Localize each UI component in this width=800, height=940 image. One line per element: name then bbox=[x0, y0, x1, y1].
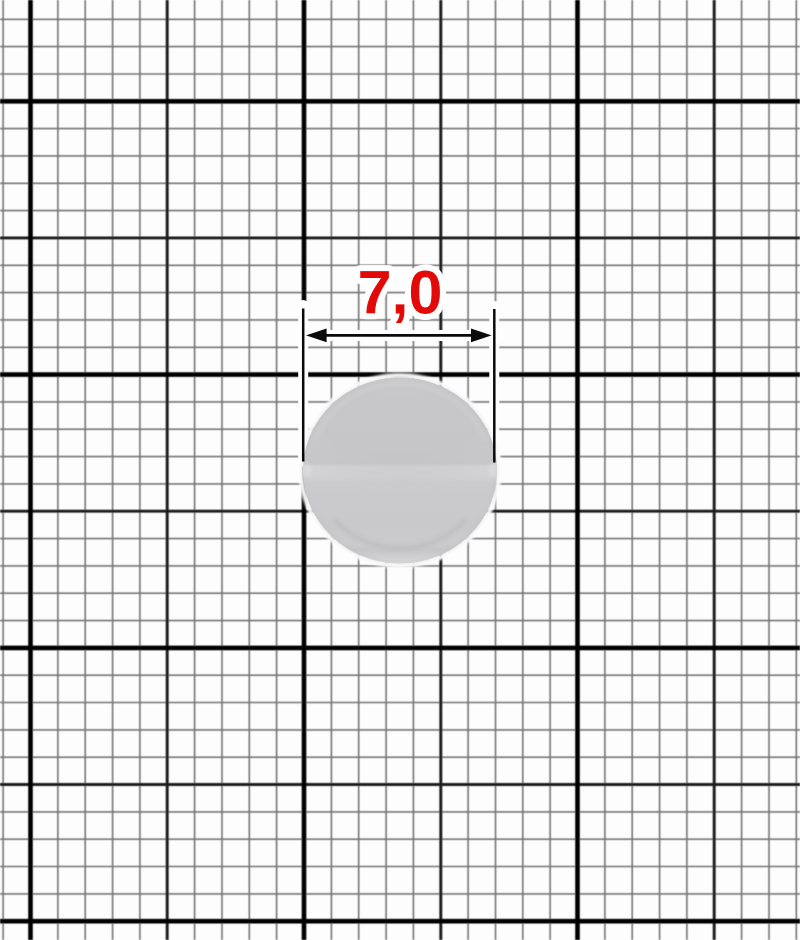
svg-text:7,0: 7,0 bbox=[358, 259, 443, 327]
